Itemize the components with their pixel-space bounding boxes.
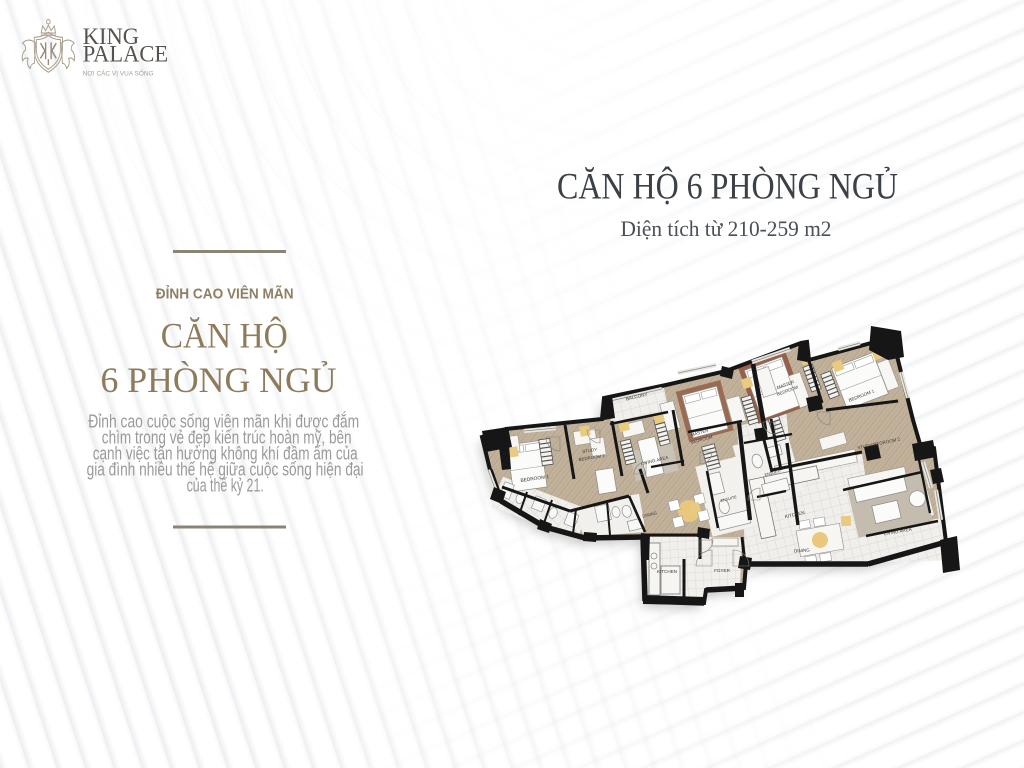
svg-text:FOYER: FOYER	[714, 568, 731, 573]
svg-text:KITCHEN: KITCHEN	[657, 569, 677, 574]
svg-text:CĂN HỘ 6 PHÒNG NGỦ: CĂN HỘ 6 PHÒNG NGỦ	[557, 165, 898, 208]
svg-text:NƠI CÁC VỊ VUA SỐNG: NƠI CÁC VỊ VUA SỐNG	[83, 70, 154, 77]
svg-text:Diện tích từ 210-259 m2: Diện tích từ 210-259 m2	[621, 216, 832, 241]
svg-text:của thế kỷ 21.: của thế kỷ 21.	[187, 475, 264, 496]
svg-text:6 PHÒNG NGỦ: 6 PHÒNG NGỦ	[101, 360, 337, 400]
svg-text:CĂN HỘ: CĂN HỘ	[161, 316, 288, 356]
svg-text:ĐỈNH CAO VIÊN MÃN: ĐỈNH CAO VIÊN MÃN	[156, 284, 294, 302]
svg-text:PALACE: PALACE	[83, 42, 168, 67]
